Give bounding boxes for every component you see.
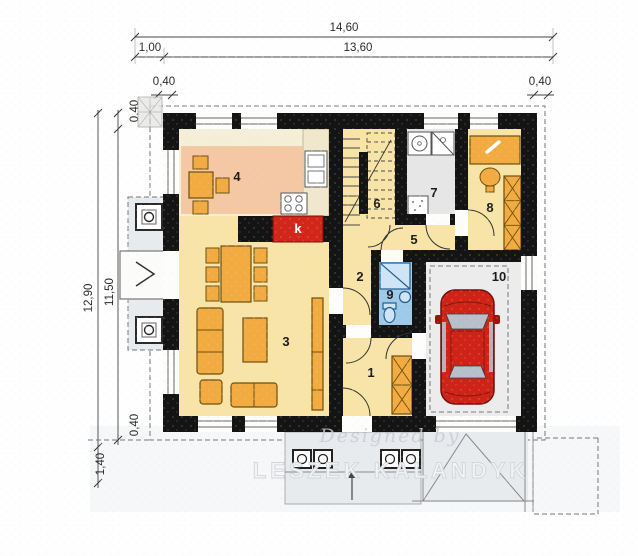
watermark-script: Designed by: [318, 425, 460, 447]
watermark-name: LESZEK KALANDYK: [253, 458, 529, 483]
floor-plan-drawing: 14,60 1,00 13,60 0,40 0,40 12,90 1,40 11…: [0, 0, 638, 556]
floor-plan-page: 14,60 1,00 13,60 0,40 0,40 12,90 1,40 11…: [0, 0, 638, 556]
